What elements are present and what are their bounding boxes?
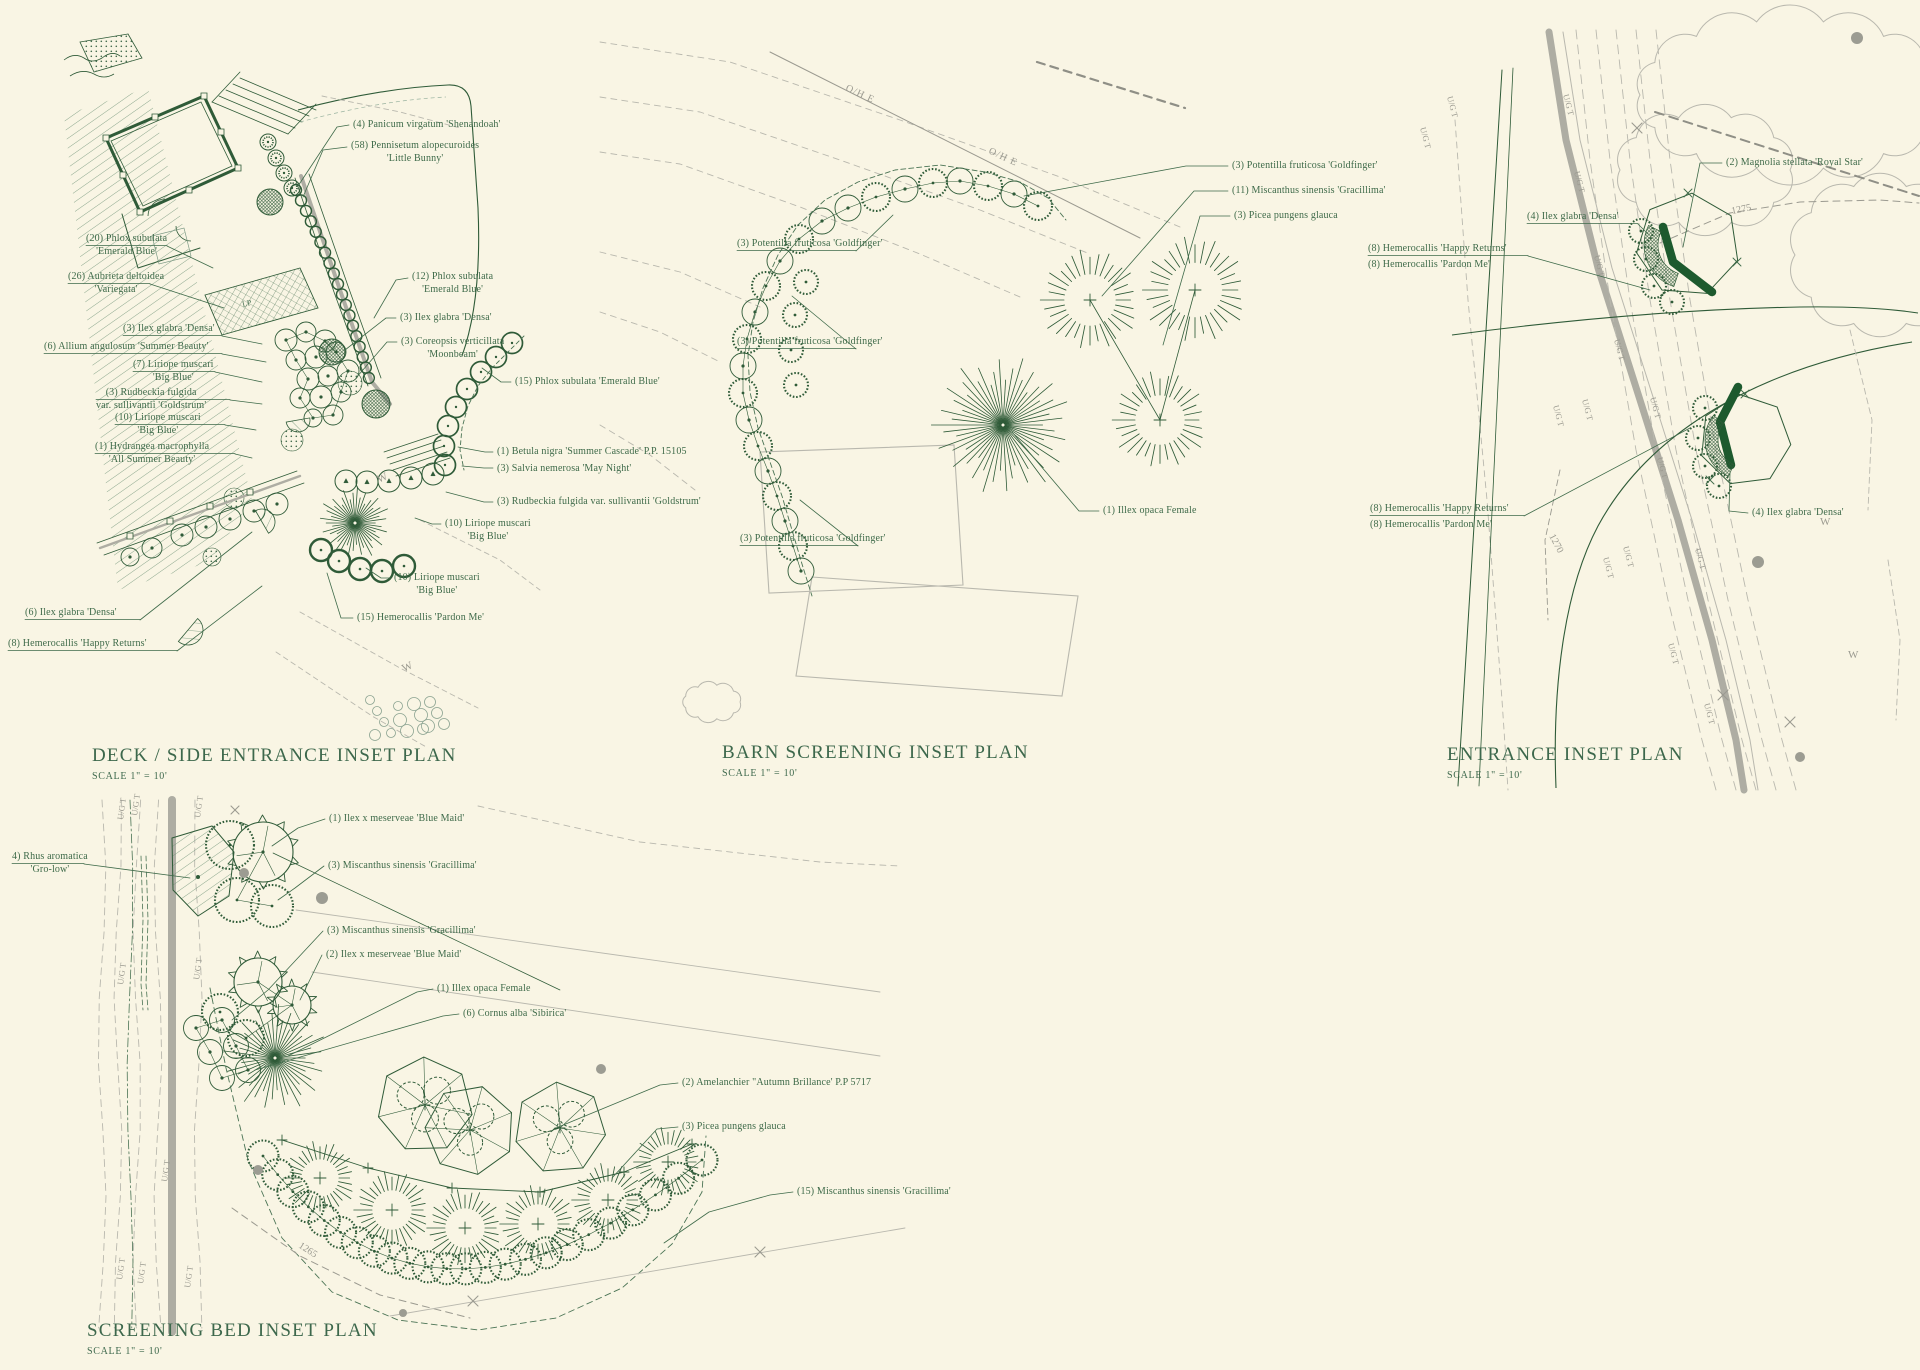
svg-text:U/G T: U/G T [1655, 456, 1671, 480]
plan-scale: SCALE 1" = 10' [1447, 770, 1684, 781]
plan-title: ENTRANCE INSET PLAN [1447, 744, 1684, 766]
svg-text:U/G T: U/G T [1612, 338, 1628, 362]
svg-text:U/G T: U/G T [191, 956, 204, 980]
svg-text:U/G T: U/G T [1580, 398, 1596, 422]
svg-text:W: W [400, 659, 415, 675]
plan-sheet: WWLPO/H EO/H E12751270WWU/G TU/G TU/G TU… [0, 0, 1920, 1370]
svg-text:1275: 1275 [1730, 202, 1752, 217]
plan-scale: SCALE 1" = 10' [92, 771, 457, 782]
svg-text:U/G T: U/G T [1418, 126, 1434, 150]
plan-title: SCREENING BED INSET PLAN [87, 1320, 378, 1342]
plan-title-barn: BARN SCREENING INSET PLAN SCALE 1" = 10' [722, 742, 1029, 779]
svg-text:U/G T: U/G T [1445, 95, 1461, 119]
plan-title-entrance: ENTRANCE INSET PLAN SCALE 1" = 10' [1447, 744, 1684, 781]
svg-text:U/G T: U/G T [1693, 547, 1709, 571]
svg-text:1270: 1270 [1546, 532, 1565, 555]
svg-text:U/G T: U/G T [1702, 702, 1718, 726]
svg-text:W: W [1848, 649, 1859, 661]
svg-text:U/G T: U/G T [1666, 642, 1682, 666]
svg-text:U/G T: U/G T [135, 1260, 148, 1284]
svg-text:U/G T: U/G T [1551, 404, 1567, 428]
svg-text:U/G T: U/G T [182, 1264, 195, 1288]
svg-text:U/G T: U/G T [192, 794, 205, 818]
plan-title-deck: DECK / SIDE ENTRANCE INSET PLAN SCALE 1"… [92, 745, 457, 782]
svg-text:O/H E: O/H E [987, 146, 1020, 169]
svg-text:U/G T: U/G T [115, 796, 128, 820]
svg-text:U/G T: U/G T [115, 961, 128, 985]
plan-title: BARN SCREENING INSET PLAN [722, 742, 1029, 764]
svg-text:1265: 1265 [296, 1240, 319, 1260]
svg-text:U/G T: U/G T [1621, 545, 1637, 569]
plan-title: DECK / SIDE ENTRANCE INSET PLAN [92, 745, 457, 767]
plan-scale: SCALE 1" = 10' [722, 768, 1029, 779]
plan-title-screening: SCREENING BED INSET PLAN SCALE 1" = 10' [87, 1320, 378, 1357]
svg-text:W: W [1820, 516, 1831, 528]
plan-scale: SCALE 1" = 10' [87, 1346, 378, 1357]
svg-text:U/G T: U/G T [1601, 556, 1617, 580]
plan-drawing: WWLPO/H EO/H E12751270WWU/G TU/G TU/G TU… [0, 0, 1920, 1370]
svg-text:U/G T: U/G T [114, 1256, 127, 1280]
